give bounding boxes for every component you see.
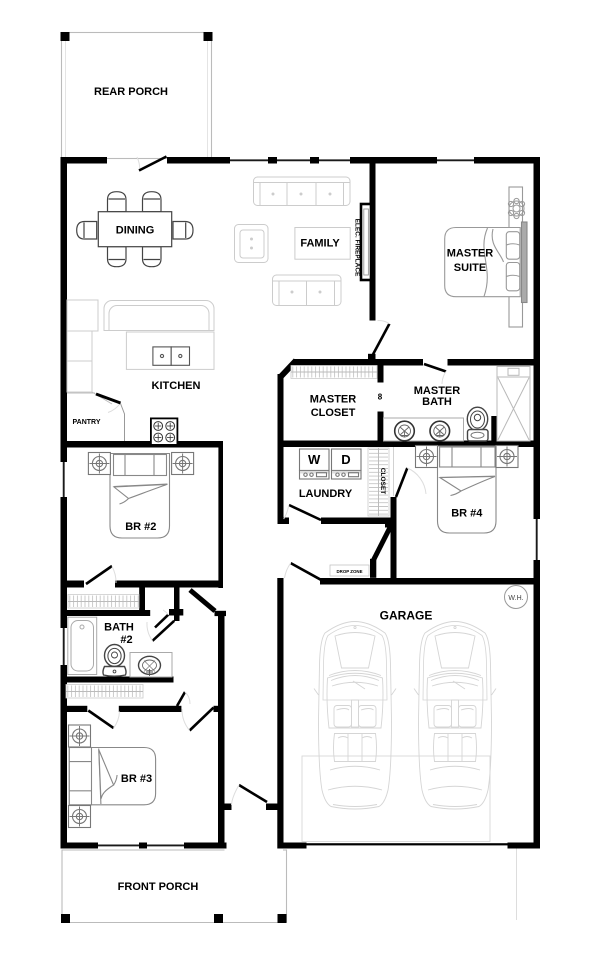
svg-text:CLOSET: CLOSET <box>379 468 386 494</box>
svg-text:FRONT PORCH: FRONT PORCH <box>118 881 199 893</box>
svg-text:#2: #2 <box>120 634 132 646</box>
svg-text:BR #3: BR #3 <box>121 773 152 785</box>
svg-text:W.H.: W.H. <box>508 595 523 602</box>
svg-text:MASTER: MASTER <box>310 394 357 406</box>
svg-text:KITCHEN: KITCHEN <box>152 380 201 392</box>
svg-text:REAR PORCH: REAR PORCH <box>94 86 168 98</box>
svg-text:FAMILY: FAMILY <box>300 238 340 250</box>
svg-text:BATH: BATH <box>422 396 452 408</box>
svg-text:8: 8 <box>378 393 383 402</box>
svg-text:LAUNDRY: LAUNDRY <box>299 488 353 500</box>
svg-text:DROP ZONE: DROP ZONE <box>336 569 362 574</box>
svg-text:PANTRY: PANTRY <box>73 419 101 426</box>
svg-text:BR #4: BR #4 <box>451 508 483 520</box>
svg-text:D: D <box>341 452 350 467</box>
svg-text:ELEC. FIREPLACE: ELEC. FIREPLACE <box>354 219 361 277</box>
svg-text:BR #2: BR #2 <box>125 521 156 533</box>
svg-text:MASTER: MASTER <box>447 248 494 260</box>
svg-text:BATH: BATH <box>104 622 134 634</box>
svg-text:DINING: DINING <box>116 225 155 237</box>
svg-text:GARAGE: GARAGE <box>380 609 433 623</box>
svg-text:CLOSET: CLOSET <box>311 407 356 419</box>
svg-text:W: W <box>308 452 321 467</box>
svg-text:SUITE: SUITE <box>454 262 486 274</box>
